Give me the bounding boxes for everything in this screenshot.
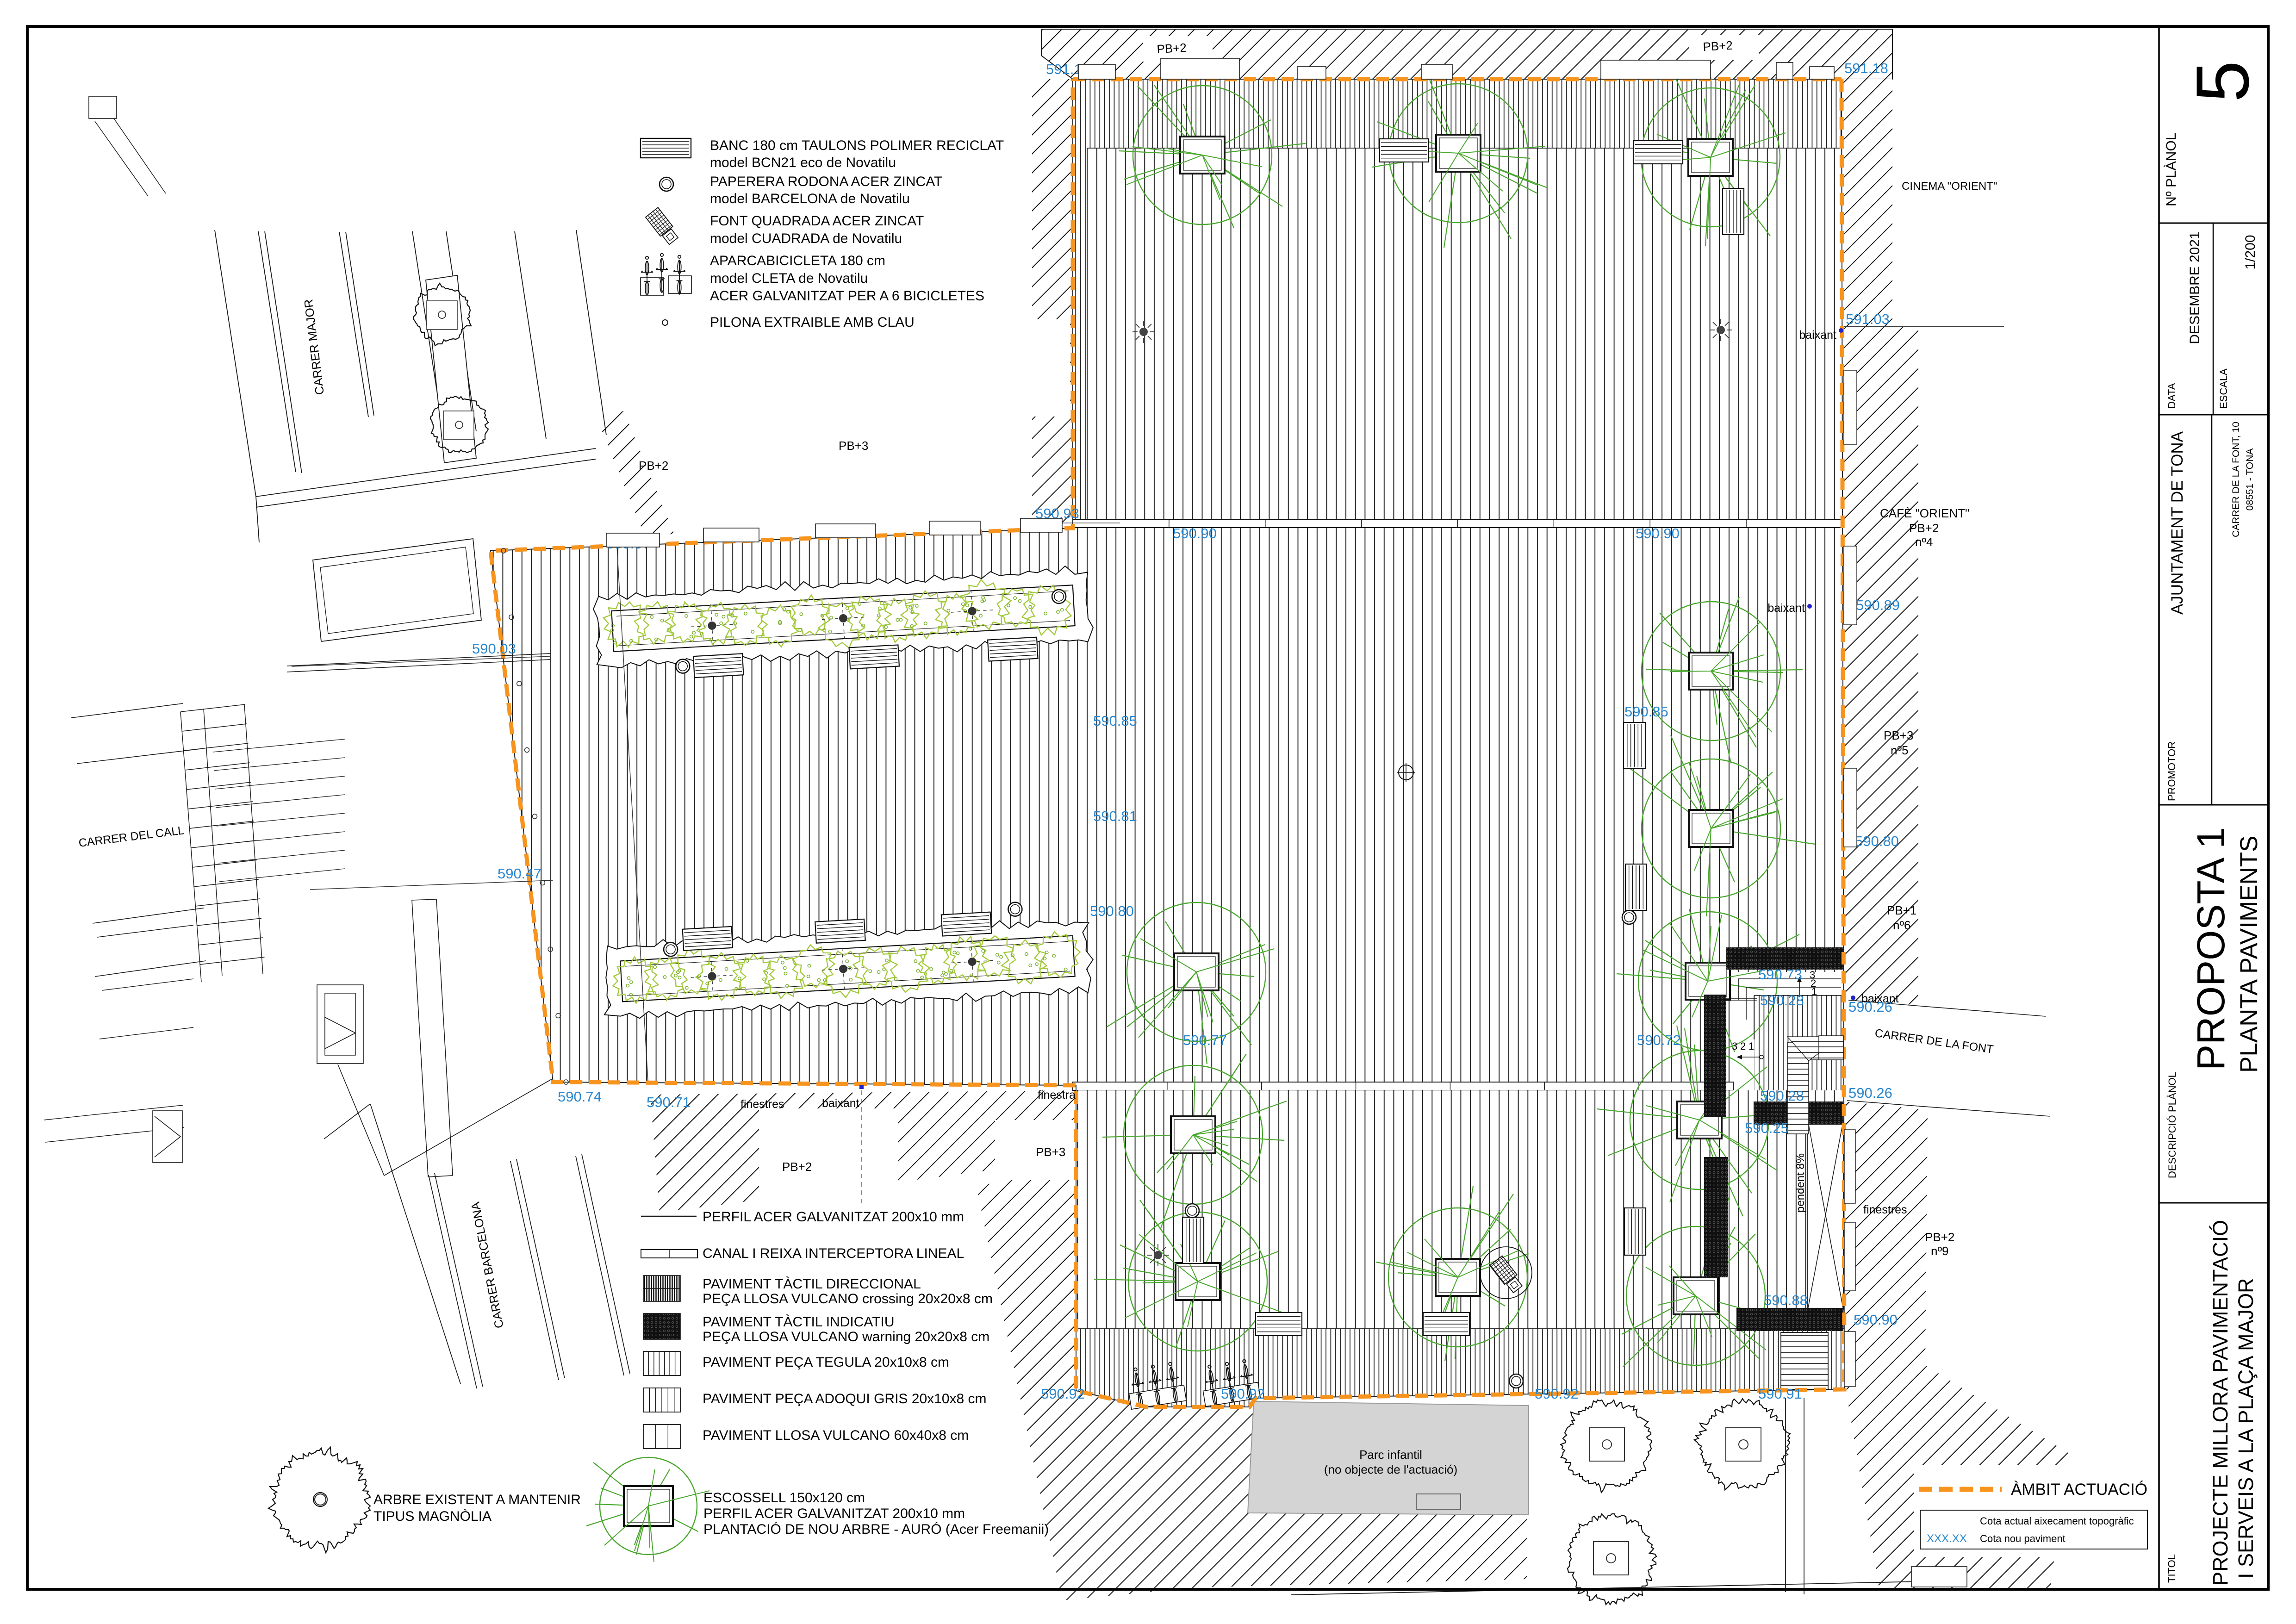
svg-text:baixant: baixant: [1799, 329, 1836, 342]
svg-text:BANC 180 cm TAULONS POLIMER RE: BANC 180 cm TAULONS POLIMER RECICLAT: [710, 138, 1004, 153]
svg-text:PB+2: PB+2: [1157, 41, 1187, 56]
svg-text:nº5: nº5: [1891, 743, 1908, 757]
svg-text:PILONA EXTRAIBLE AMB CLAU: PILONA EXTRAIBLE AMB CLAU: [710, 315, 915, 330]
svg-text:3: 3: [1732, 1040, 1737, 1052]
svg-text:DESCRIPCIÓ PLÀNOL: DESCRIPCIÓ PLÀNOL: [2166, 1072, 2178, 1178]
svg-text:(no objecte de l'actuació): (no objecte de l'actuació): [1324, 1462, 1457, 1476]
svg-text:2: 2: [1740, 1040, 1746, 1052]
svg-text:590.71: 590.71: [647, 1094, 691, 1110]
svg-text:ESCALA: ESCALA: [2218, 368, 2229, 409]
svg-text:CAFÈ "ORIENT": CAFÈ "ORIENT": [1880, 506, 1969, 520]
svg-text:590.26: 590.26: [1848, 1085, 1892, 1101]
svg-text:590.90: 590.90: [1173, 525, 1217, 541]
svg-text:TITOL: TITOL: [2166, 1554, 2178, 1583]
svg-text:590.03: 590.03: [472, 641, 516, 657]
svg-text:CANAL I REIXA INTERCEPTORA LIN: CANAL I REIXA INTERCEPTORA LINEAL: [703, 1246, 964, 1261]
svg-text:PEÇA LLOSA VULCANO crossing 20: PEÇA LLOSA VULCANO crossing 20x20x8 cm: [703, 1291, 993, 1307]
svg-text:PAVIMENT PEÇA ADOQUI GRIS 20x1: PAVIMENT PEÇA ADOQUI GRIS 20x10x8 cm: [703, 1391, 987, 1406]
svg-text:590.92: 590.92: [1041, 1386, 1085, 1402]
svg-text:Cota nou paviment: Cota nou paviment: [1980, 1533, 2066, 1544]
svg-text:590.85: 590.85: [1093, 713, 1137, 729]
svg-text:590.81: 590.81: [1093, 808, 1137, 824]
svg-text:PROPOSTA 1: PROPOSTA 1: [2189, 827, 2233, 1070]
svg-text:590.74: 590.74: [558, 1089, 602, 1105]
svg-text:PERFIL ACER GALVANITZAT 200x10: PERFIL ACER GALVANITZAT 200x10 mm: [703, 1506, 965, 1521]
svg-text:590.72: 590.72: [1637, 1032, 1681, 1048]
svg-text:I SERVEIS A LA PLAÇA MAJOR: I SERVEIS A LA PLAÇA MAJOR: [2234, 1278, 2258, 1579]
svg-text:ACER GALVANITZAT PER A 6 BICIC: ACER GALVANITZAT PER A 6 BICICLETES: [710, 288, 984, 304]
svg-text:590.91: 590.91: [1758, 1386, 1802, 1402]
svg-text:CARRER DE LA FONT, 10: CARRER DE LA FONT, 10: [2231, 422, 2241, 537]
svg-text:591.18: 591.18: [1844, 60, 1888, 76]
svg-text:590.77: 590.77: [1183, 1032, 1227, 1048]
svg-text:nº4: nº4: [1915, 535, 1933, 549]
svg-text:590.90: 590.90: [1854, 1312, 1898, 1328]
svg-text:590.89: 590.89: [1856, 597, 1900, 613]
svg-text:PB+1: PB+1: [1887, 903, 1916, 917]
svg-text:model CLETA de Novatilu: model CLETA de Novatilu: [710, 271, 868, 286]
svg-text:590.47: 590.47: [498, 865, 541, 882]
svg-text:590.80: 590.80: [1090, 903, 1134, 919]
svg-text:finestres: finestres: [1863, 1203, 1907, 1216]
svg-text:PERFIL ACER GALVANITZAT 200x10: PERFIL ACER GALVANITZAT 200x10 mm: [703, 1209, 964, 1225]
svg-text:model BARCELONA de Novatilu: model BARCELONA de Novatilu: [710, 191, 910, 206]
svg-text:baixant: baixant: [822, 1097, 859, 1110]
svg-text:ESCOSSELL 150x120 cm: ESCOSSELL 150x120 cm: [703, 1490, 865, 1506]
svg-text:1/200: 1/200: [2243, 235, 2258, 269]
svg-text:baixant: baixant: [1767, 602, 1805, 615]
svg-text:TIPUS MAGNÒLIA: TIPUS MAGNÒLIA: [373, 1509, 492, 1524]
svg-text:nº6: nº6: [1893, 918, 1910, 932]
svg-text:baixant: baixant: [1861, 992, 1899, 1005]
svg-text:PROJECTE MILLORA PAVIMENTACIÓ: PROJECTE MILLORA PAVIMENTACIÓ: [2209, 1220, 2232, 1586]
svg-text:finestres: finestres: [740, 1098, 784, 1111]
svg-text:PB+3: PB+3: [1884, 728, 1913, 742]
svg-text:590.90: 590.90: [1636, 525, 1680, 541]
svg-text:PAVIMENT LLOSA VULCANO 60x40x8: PAVIMENT LLOSA VULCANO 60x40x8 cm: [703, 1428, 969, 1443]
svg-text:590.80: 590.80: [1855, 833, 1899, 849]
svg-text:pendent 8%: pendent 8%: [1794, 1153, 1807, 1213]
svg-text:591.03: 591.03: [1846, 311, 1890, 327]
svg-text:590.25: 590.25: [1745, 1120, 1789, 1136]
svg-text:590.28: 590.28: [1760, 1088, 1804, 1104]
svg-text:FONT QUADRADA ACER ZINCAT: FONT QUADRADA ACER ZINCAT: [710, 213, 924, 229]
svg-text:08551 - TONA: 08551 - TONA: [2245, 448, 2255, 511]
svg-text:PB+2: PB+2: [1925, 1230, 1954, 1244]
svg-text:PAVIMENT TÀCTIL INDICATIU: PAVIMENT TÀCTIL INDICATIU: [703, 1314, 895, 1330]
svg-text:ARBRE EXISTENT A MANTENIR: ARBRE EXISTENT A MANTENIR: [373, 1492, 581, 1507]
svg-text:DESEMBRE 2021: DESEMBRE 2021: [2187, 231, 2203, 344]
svg-text:590.88: 590.88: [1764, 1292, 1808, 1308]
svg-text:PEÇA LLOSA VULCANO warning 20x: PEÇA LLOSA VULCANO warning 20x20x8 cm: [703, 1329, 989, 1344]
svg-text:CINEMA "ORIENT": CINEMA "ORIENT": [1902, 180, 1997, 193]
svg-text:590.28: 590.28: [1760, 992, 1804, 1008]
svg-text:590.92: 590.92: [1535, 1386, 1579, 1402]
svg-text:PB+2: PB+2: [639, 459, 668, 473]
svg-text:1: 1: [1748, 1040, 1754, 1052]
svg-text:XXX.XX: XXX.XX: [1927, 1532, 1967, 1545]
svg-text:PAVIMENT PEÇA TEGULA 20x10x8 c: PAVIMENT PEÇA TEGULA 20x10x8 cm: [703, 1355, 949, 1370]
svg-text:PB+2: PB+2: [782, 1160, 812, 1174]
svg-text:model BCN21 eco de Novatilu: model BCN21 eco de Novatilu: [710, 155, 896, 170]
svg-text:Cota actual aixecament topogrà: Cota actual aixecament topogràfic: [1980, 1515, 2134, 1527]
svg-text:AJUNTAMENT DE TONA: AJUNTAMENT DE TONA: [2168, 431, 2186, 615]
svg-text:590.73: 590.73: [1758, 966, 1802, 983]
svg-text:PB+3: PB+3: [839, 439, 868, 453]
svg-text:PB+2: PB+2: [1909, 521, 1939, 535]
svg-text:ÀMBIT ACTUACIÓ: ÀMBIT ACTUACIÓ: [2011, 1481, 2147, 1499]
svg-text:PB+2: PB+2: [1703, 38, 1733, 54]
svg-text:PAPERERA RODONA ACER ZINCAT: PAPERERA RODONA ACER ZINCAT: [710, 174, 942, 189]
svg-text:APARCABICICLETA 180 cm: APARCABICICLETA 180 cm: [710, 253, 885, 268]
svg-text:PLANTA PAVIMENTS: PLANTA PAVIMENTS: [2235, 836, 2263, 1073]
svg-text:Nº PLÀNOL: Nº PLÀNOL: [2164, 133, 2179, 206]
svg-text:590.92: 590.92: [1221, 1386, 1265, 1402]
svg-text:1: 1: [1811, 986, 1817, 997]
svg-text:PAVIMENT TÀCTIL DIRECCIONAL: PAVIMENT TÀCTIL DIRECCIONAL: [703, 1276, 921, 1292]
svg-text:590.85: 590.85: [1624, 703, 1668, 720]
svg-text:5: 5: [2181, 61, 2265, 102]
svg-text:nº9: nº9: [1931, 1244, 1948, 1258]
svg-text:DATA: DATA: [2166, 383, 2178, 409]
svg-text:Parc infantil: Parc infantil: [1359, 1448, 1422, 1462]
svg-text:PLANTACIÓ DE NOU ARBRE - AURÓ: PLANTACIÓ DE NOU ARBRE - AURÓ (Acer Free…: [703, 1522, 1049, 1537]
svg-text:finestra: finestra: [1038, 1089, 1076, 1101]
svg-text:PB+3: PB+3: [1036, 1145, 1065, 1159]
svg-text:model CUADRADA de Novatilu: model CUADRADA de Novatilu: [710, 231, 902, 246]
svg-text:PROMOTOR: PROMOTOR: [2166, 741, 2178, 801]
